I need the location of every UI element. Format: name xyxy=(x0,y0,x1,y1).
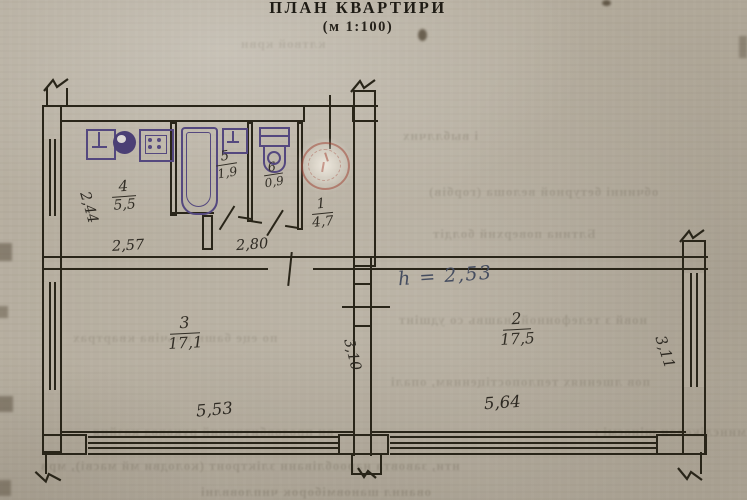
window xyxy=(42,139,62,216)
sink-bowl-icon xyxy=(117,135,126,143)
room-number: 1 xyxy=(300,195,341,214)
scale-note: (м 1:100) xyxy=(300,19,416,36)
dimension-hall-width: 2,80 xyxy=(235,236,268,254)
window xyxy=(42,282,62,390)
room-area: 17,1 xyxy=(162,334,209,353)
break-mark-icon xyxy=(678,229,708,244)
bleed-through-text: нти, завовта нарообліванн зліктронт (кол… xyxy=(40,458,460,474)
room-area: 17,5 xyxy=(494,330,541,349)
break-mark-icon xyxy=(349,79,379,94)
washbasin-icon xyxy=(227,141,239,143)
wall xyxy=(60,120,305,122)
wall-cut xyxy=(380,453,382,475)
vent-shaft-rung xyxy=(353,283,372,285)
edge-smudge xyxy=(0,480,11,496)
wall xyxy=(60,431,355,433)
door-tick xyxy=(266,210,284,237)
dimension-room3-width: 5,53 xyxy=(195,398,233,420)
vent-shaft-rung xyxy=(342,306,390,308)
edge-smudge xyxy=(0,396,13,412)
edge-smudge xyxy=(0,243,12,261)
bleed-through-text: ованнл шановміборок чнпловвлні xyxy=(200,484,431,500)
toilet-tank-icon xyxy=(259,127,290,147)
wall-cut xyxy=(351,453,353,475)
room-area: 1,9 xyxy=(207,163,249,182)
scanned-floor-plan-page: ПЛАН КВАРТИРИ (м 1:100) клтвой крвн і вы… xyxy=(0,0,747,500)
wall xyxy=(370,256,372,456)
room-area: 0,9 xyxy=(255,173,295,191)
kitchen-sink-icon xyxy=(86,129,116,160)
door-jamb xyxy=(303,105,305,122)
dimension-kitchen-width: 2,57 xyxy=(112,237,145,255)
window xyxy=(682,273,706,387)
break-mark-icon xyxy=(676,466,706,481)
room-number: 3 xyxy=(161,314,208,333)
wall xyxy=(338,434,389,455)
kitchen-sink-icon xyxy=(98,132,100,146)
stove-burner-icon xyxy=(148,145,152,149)
edge-smudge xyxy=(0,306,8,318)
edge-smudge xyxy=(739,36,747,58)
kitchen-sink-icon xyxy=(92,146,107,148)
break-mark-icon xyxy=(42,78,72,93)
stove-burner-icon xyxy=(157,138,161,142)
window xyxy=(88,436,338,455)
room-area: 4,7 xyxy=(302,213,343,231)
wall xyxy=(251,220,262,224)
room-label-toilet: 6 0,9 xyxy=(252,157,294,191)
room-label-bathroom: 5 1,9 xyxy=(204,146,248,182)
break-mark-icon xyxy=(356,466,380,479)
bleed-through-text: і выбллчнх xyxy=(402,128,478,144)
bleed-through-text: Блтина поверхнй болдіт xyxy=(432,226,596,242)
page-title: ПЛАН КВАРТИРИ xyxy=(258,0,458,18)
wall xyxy=(42,256,708,258)
room-label-hallway: 1 4,7 xyxy=(300,195,343,231)
dimension-room2-window: 3,11 xyxy=(651,333,678,370)
stove-burner-icon xyxy=(148,138,152,142)
handwritten-height-note: h = 2,53 xyxy=(397,262,493,291)
wall xyxy=(371,431,686,433)
ink-speck xyxy=(602,0,611,6)
room-number: 2 xyxy=(493,310,540,329)
door-jamb xyxy=(202,215,213,250)
bleed-through-text: пов лшеннях теплопостіценням, опалі xyxy=(390,374,650,390)
room-label-room3: 3 17,1 xyxy=(161,314,209,352)
bleed-through-text: клтвой крвн xyxy=(240,36,326,52)
dimension-room2-width: 5,64 xyxy=(483,392,521,414)
dimension-left-window: 2,44 xyxy=(76,190,100,225)
door-tick xyxy=(219,205,236,230)
room-label-kitchen: 4 5,5 xyxy=(103,178,145,214)
wall xyxy=(42,434,87,455)
vent-shaft-rung xyxy=(353,325,372,327)
break-mark-icon xyxy=(33,466,65,485)
stove-burner-icon xyxy=(157,145,161,149)
toilet-tank-icon xyxy=(259,135,290,137)
room-area: 5,5 xyxy=(104,196,145,213)
window xyxy=(390,436,656,455)
ink-speck xyxy=(418,29,427,41)
dimension-room3-depth: 3,10 xyxy=(340,337,363,372)
wall xyxy=(353,90,376,267)
sink-bowl-icon xyxy=(113,131,136,154)
room-label-room2: 2 17,5 xyxy=(493,310,541,348)
room-number: 4 xyxy=(103,178,144,197)
wall xyxy=(42,268,268,270)
bleed-through-text: обчинні бетурной велоша (горбів) xyxy=(428,184,658,200)
